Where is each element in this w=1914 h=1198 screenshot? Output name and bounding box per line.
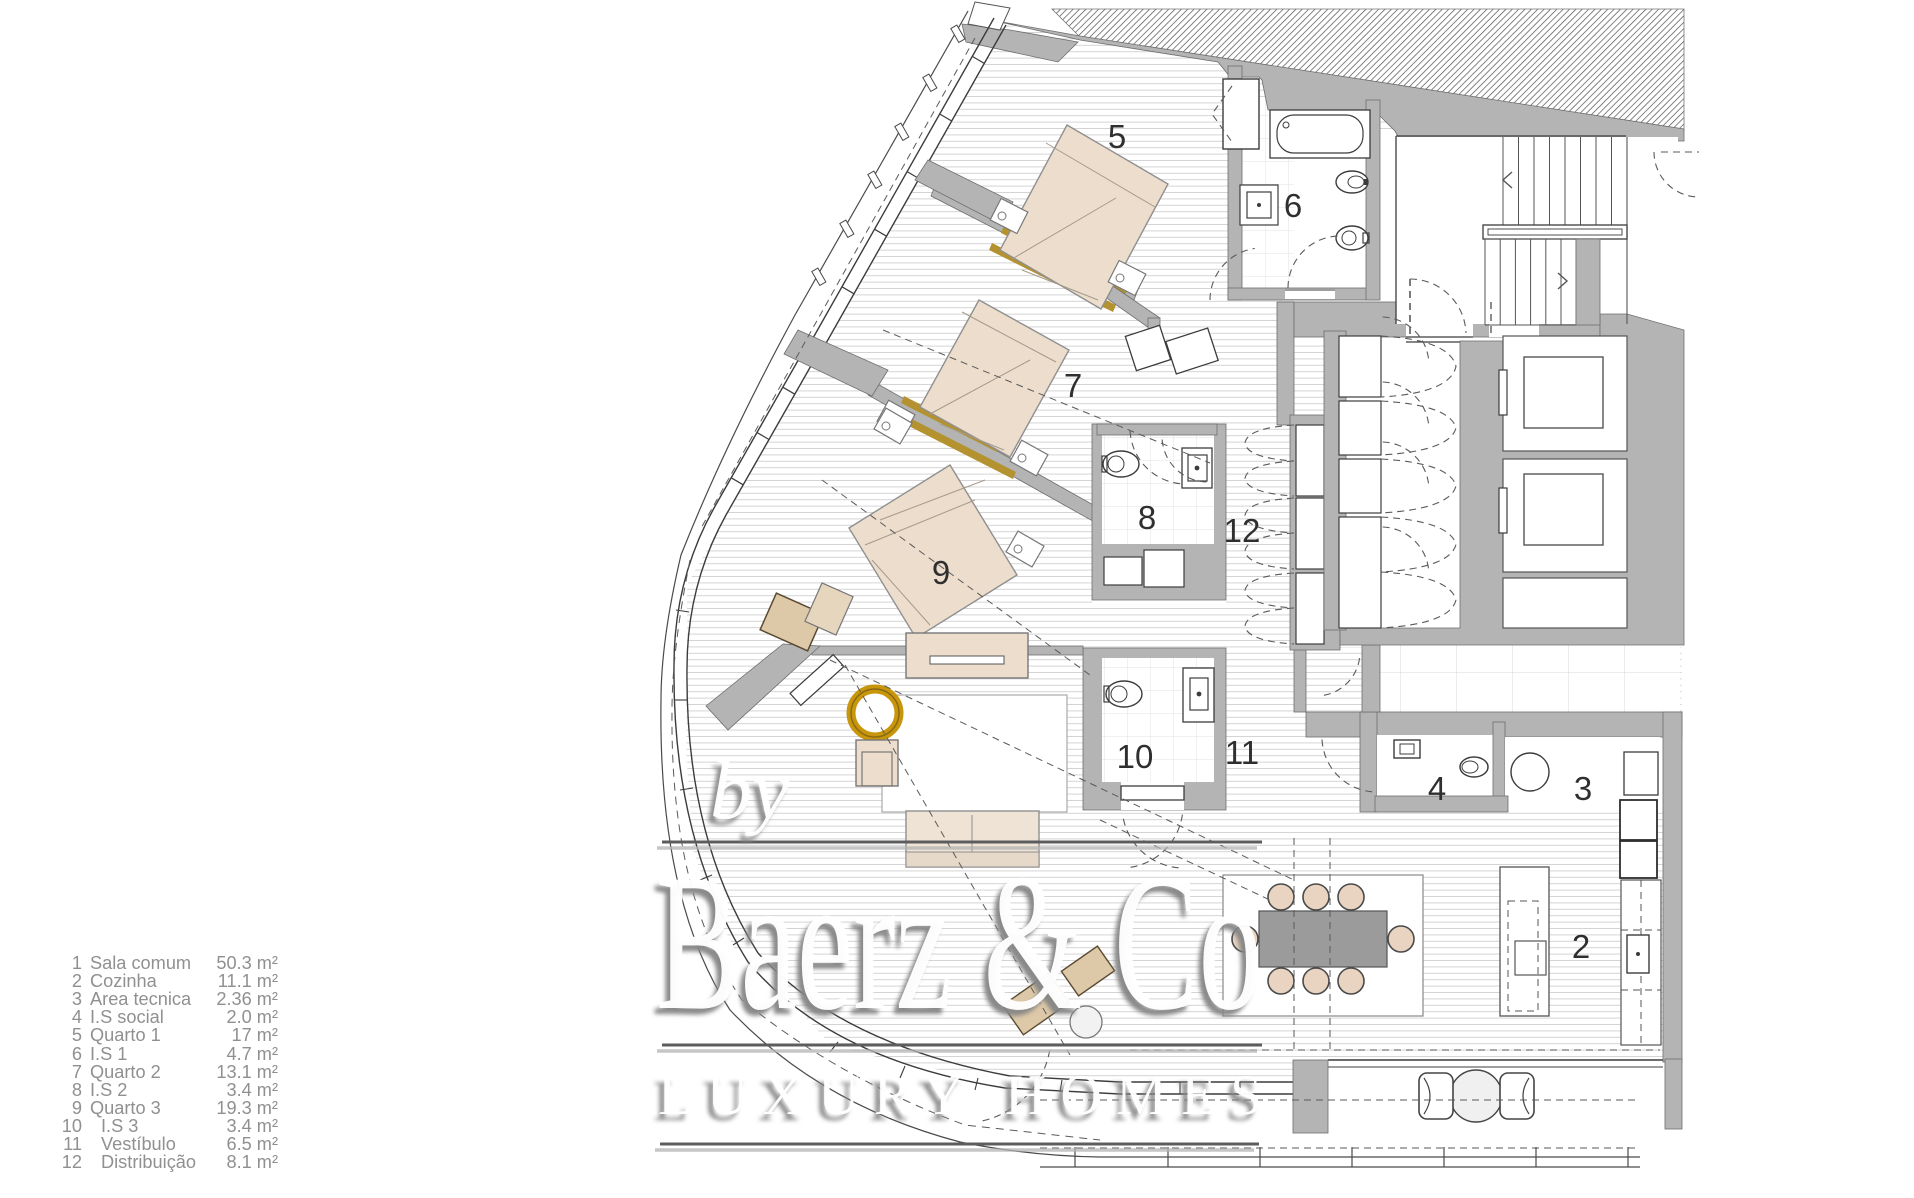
- svg-text:Vestíbulo: Vestíbulo: [101, 1134, 176, 1154]
- svg-text:17 m²: 17 m²: [232, 1025, 279, 1045]
- svg-text:10: 10: [62, 1116, 82, 1136]
- svg-text:2.36 m²: 2.36 m²: [216, 989, 278, 1009]
- svg-text:5: 5: [1108, 118, 1126, 155]
- svg-text:I.S 2: I.S 2: [90, 1080, 127, 1100]
- svg-text:4: 4: [1428, 770, 1446, 807]
- svg-text:Quarto 2: Quarto 2: [90, 1062, 161, 1082]
- svg-text:Distribuição: Distribuição: [101, 1152, 196, 1172]
- svg-text:3: 3: [72, 989, 82, 1009]
- svg-text:2.0 m²: 2.0 m²: [226, 1007, 278, 1027]
- svg-text:7: 7: [1064, 367, 1082, 404]
- svg-text:8: 8: [72, 1080, 82, 1100]
- svg-text:8.1 m²: 8.1 m²: [226, 1152, 278, 1172]
- svg-text:I.S 1: I.S 1: [90, 1044, 127, 1064]
- svg-text:13.1 m²: 13.1 m²: [216, 1062, 278, 1082]
- svg-text:12: 12: [62, 1152, 82, 1172]
- svg-text:6.5 m²: 6.5 m²: [226, 1134, 278, 1154]
- svg-text:3.4 m²: 3.4 m²: [226, 1080, 278, 1100]
- svg-text:4: 4: [72, 1007, 82, 1027]
- svg-text:Quarto 1: Quarto 1: [90, 1025, 161, 1045]
- svg-text:Baerz & Co: Baerz & Co: [656, 834, 1262, 1051]
- svg-text:11: 11: [1225, 734, 1259, 771]
- svg-text:5: 5: [72, 1025, 82, 1045]
- svg-text:I.S social: I.S social: [90, 1007, 164, 1027]
- svg-text:Area tecnica: Area tecnica: [90, 989, 192, 1009]
- svg-text:11: 11: [63, 1134, 82, 1154]
- svg-text:11.1 m²: 11.1 m²: [218, 971, 278, 991]
- svg-text:12: 12: [1224, 512, 1261, 549]
- svg-text:3: 3: [1574, 770, 1592, 807]
- svg-text:3.4 m²: 3.4 m²: [226, 1116, 278, 1136]
- svg-text:by: by: [710, 744, 790, 837]
- svg-text:6: 6: [72, 1044, 82, 1064]
- svg-text:2: 2: [72, 971, 82, 991]
- svg-text:7: 7: [72, 1062, 82, 1082]
- svg-text:Quarto 3: Quarto 3: [90, 1098, 161, 1118]
- svg-text:9: 9: [932, 554, 950, 591]
- svg-text:I.S 3: I.S 3: [101, 1116, 138, 1136]
- svg-text:1: 1: [72, 953, 82, 973]
- svg-text:2: 2: [1572, 928, 1590, 965]
- svg-text:8: 8: [1138, 499, 1156, 536]
- svg-text:Sala comum: Sala comum: [90, 953, 191, 973]
- svg-text:19.3 m²: 19.3 m²: [216, 1098, 278, 1118]
- svg-text:6: 6: [1284, 187, 1302, 224]
- svg-text:Cozinha: Cozinha: [90, 971, 158, 991]
- svg-text:9: 9: [72, 1098, 82, 1118]
- svg-text:50.3 m²: 50.3 m²: [216, 953, 278, 973]
- svg-text:10: 10: [1117, 738, 1154, 775]
- svg-text:4.7 m²: 4.7 m²: [226, 1044, 278, 1064]
